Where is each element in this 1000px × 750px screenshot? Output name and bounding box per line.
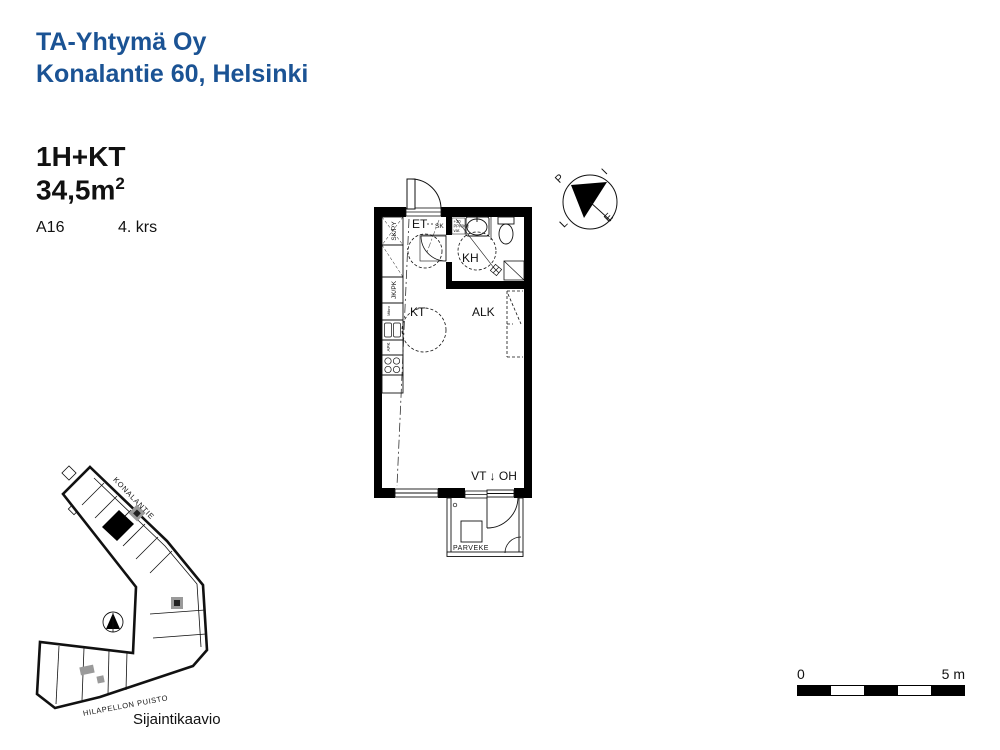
scale-end-label: 5 m xyxy=(942,666,965,682)
microwave-label: Mikro xyxy=(386,305,391,316)
tall-cabinet-label: SK/PY xyxy=(391,221,398,241)
balcony-table xyxy=(461,521,482,542)
room-label-bathroom: KH xyxy=(462,251,479,265)
floorplan-drawing: ET SK KH KT ALK VT ↓ OH PARVEKE SK/PY JK… xyxy=(355,155,630,570)
compass-south-label: E xyxy=(602,211,616,225)
compass-east-label: I xyxy=(600,167,611,178)
floor-plan-page: TA-Yhtymä Oy Konalantie 60, Helsinki 1H+… xyxy=(0,0,1000,750)
apartment-type: 1H+KT xyxy=(36,140,125,174)
toilet-icon xyxy=(498,217,514,244)
floor-number: 4. krs xyxy=(118,219,157,237)
kitchen-sink-icon xyxy=(382,320,403,340)
exterior-walls xyxy=(374,207,532,498)
room-label-kitchen: KT xyxy=(410,305,426,319)
scale-bar-segments xyxy=(797,685,965,696)
address-line: Konalantie 60, Helsinki xyxy=(36,58,308,90)
scale-segment xyxy=(931,686,964,695)
document-header: TA-Yhtymä Oy Konalantie 60, Helsinki xyxy=(36,26,308,90)
apartment-area: 34,5m2 xyxy=(36,174,125,206)
company-name: TA-Yhtymä Oy xyxy=(36,26,308,58)
siteplan-caption: Sijaintikaavio xyxy=(133,711,221,728)
bath-note-3: var. xyxy=(454,228,461,233)
stove-icon xyxy=(382,355,403,375)
siteplan-compass-icon xyxy=(103,612,123,632)
area-value: 34,5m xyxy=(36,174,115,205)
entry-closet-label: SK xyxy=(435,223,444,230)
fridge-label: JK/PK xyxy=(391,280,398,299)
area-exponent: 2 xyxy=(115,174,124,193)
siteplan-drawing: KONALANTIE HILAPELLON PUISTO Sijaintikaa… xyxy=(25,455,275,745)
dishwasher-label: APK xyxy=(386,342,391,351)
balcony-label: PARVEKE xyxy=(453,545,489,552)
room-label-alcove: ALK xyxy=(472,305,495,319)
kitchen-counter xyxy=(382,217,403,393)
scale-segment xyxy=(898,686,931,695)
compass-west-label: L xyxy=(557,217,570,230)
scale-bar: 0 5 m xyxy=(797,666,965,696)
scale-segment xyxy=(864,686,897,695)
entry-door-icon xyxy=(406,179,441,216)
room-label-entry: ET xyxy=(412,217,428,231)
bathroom-door-icon xyxy=(420,235,446,261)
alcove-wardrobe xyxy=(507,291,523,357)
scale-segment xyxy=(831,686,864,695)
turning-circle-entry xyxy=(408,234,442,268)
scale-start-label: 0 xyxy=(797,666,805,682)
vt-oh-label: VT ↓ OH xyxy=(471,469,517,483)
building-outline xyxy=(37,467,207,708)
apartment-meta: A16 4. krs xyxy=(36,219,236,237)
unit-number: A16 xyxy=(36,219,64,236)
compass-north-label: P xyxy=(553,172,567,186)
balcony-drain xyxy=(453,503,457,507)
scale-segment xyxy=(798,686,831,695)
